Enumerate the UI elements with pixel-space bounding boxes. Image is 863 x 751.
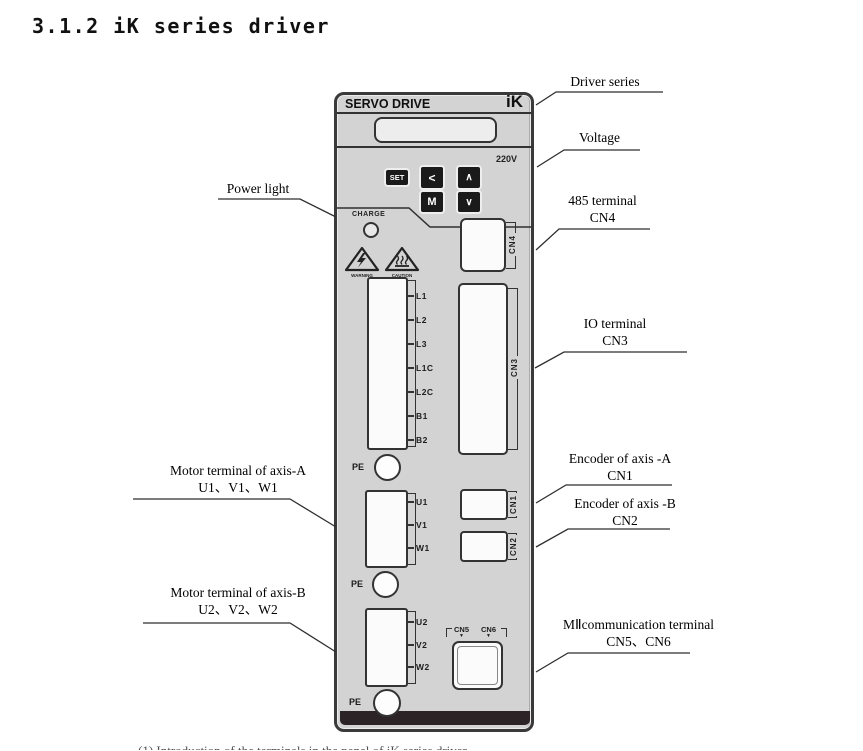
left-arrow-button: < [421, 167, 443, 188]
power-terminal-bracket [408, 280, 416, 447]
pin-label-v1: V1 [416, 520, 427, 530]
pin-tick [407, 644, 414, 646]
cn3-connector [458, 283, 508, 455]
pe-ground-screw [373, 689, 401, 717]
callout-text: Encoder of axis -A [540, 450, 700, 467]
pin-label-l3: L3 [416, 339, 427, 349]
pin-tick [407, 415, 414, 417]
caution-hot-surface-icon: CAUTION [383, 245, 421, 279]
callout-text: CN5、CN6 [536, 633, 741, 650]
header-divider [337, 112, 532, 114]
cn5-arrow-icon: ▼ [459, 633, 464, 639]
cn6-corner [501, 628, 507, 637]
display-divider [337, 146, 532, 148]
motor-a-bracket [408, 493, 416, 565]
pin-label-l2: L2 [416, 315, 427, 325]
set-button: SET [386, 170, 408, 185]
callout-power-light: Power light [208, 180, 308, 197]
pin-tick [407, 295, 414, 297]
pin-tick [407, 501, 414, 503]
charge-led [363, 222, 379, 238]
callout-encoder-a: Encoder of axis -A CN1 [540, 450, 700, 484]
cn2-label: CN2 [509, 535, 518, 558]
pin-label-u2: U2 [416, 617, 428, 627]
cn2-connector [460, 531, 508, 562]
callout-485-terminal: 485 terminal CN4 [540, 192, 665, 226]
callout-voltage: Voltage [552, 129, 647, 146]
mode-button: M [421, 192, 443, 212]
callout-text: U2、V2、W2 [138, 601, 338, 618]
cn5-cn6-connector [452, 641, 503, 690]
cn6-arrow-icon: ▼ [486, 633, 491, 639]
callout-text: Voltage [552, 129, 647, 146]
pin-label-l2c: L2C [416, 387, 434, 397]
callout-text: CN4 [540, 209, 665, 226]
footer-text: (1) Introduction of the terminals in the… [138, 744, 758, 750]
pin-label-v2: V2 [416, 640, 427, 650]
callout-text: Motor terminal of axis-A [138, 462, 338, 479]
warning-triangle-icon: WARNING [343, 245, 381, 279]
pin-label-l1c: L1C [416, 363, 434, 373]
cn1-connector [460, 489, 508, 520]
voltage-rating: 220V [496, 154, 517, 164]
cn4-label: CN4 [508, 233, 517, 256]
pe-label: PE [351, 579, 363, 589]
cn5-cn6-inner [457, 646, 498, 685]
callout-text: Motor terminal of axis-B [138, 584, 338, 601]
pe-ground-screw [374, 454, 401, 481]
panel-bottom-bar [340, 711, 530, 725]
pin-label-b1: B1 [416, 411, 428, 421]
pin-label-w1: W1 [416, 543, 430, 553]
pin-tick [407, 439, 414, 441]
cn4-connector [460, 218, 506, 272]
clipped-footer-text: (1) Introduction of the terminals in the… [138, 744, 758, 750]
callout-mii-terminal: MⅡcommunication terminal CN5、CN6 [536, 616, 741, 650]
callout-text: IO terminal [550, 315, 680, 332]
pin-tick [407, 621, 414, 623]
pin-tick [407, 524, 414, 526]
pin-tick [407, 547, 414, 549]
callout-io-terminal: IO terminal CN3 [550, 315, 680, 349]
cn1-label: CN1 [509, 493, 518, 516]
callout-text: Power light [208, 180, 308, 197]
pin-tick [407, 391, 414, 393]
callout-text: CN1 [540, 467, 700, 484]
callout-driver-series: Driver series [540, 73, 670, 90]
motor-b-terminal-block [365, 608, 408, 687]
pin-tick [407, 666, 414, 668]
pin-label-u1: U1 [416, 497, 428, 507]
pin-label-w2: W2 [416, 662, 430, 672]
pin-label-l1: L1 [416, 291, 427, 301]
pin-tick [407, 367, 414, 369]
callout-text: 485 terminal [540, 192, 665, 209]
callout-text: Encoder of axis -B [545, 495, 705, 512]
cn5-corner [446, 628, 452, 637]
cn3-label: CN3 [510, 356, 519, 379]
ik-logo: iK [506, 92, 523, 112]
up-arrow-button: ∧ [458, 167, 480, 188]
pe-ground-screw [372, 571, 399, 598]
callout-text: CN3 [550, 332, 680, 349]
motor-a-terminal-block [365, 490, 408, 568]
callout-text: MⅡcommunication terminal [536, 616, 741, 633]
callout-text: U1、V1、W1 [138, 479, 338, 496]
callout-encoder-b: Encoder of axis -B CN2 [545, 495, 705, 529]
manual-page: 3.1.2 iK series driver SERVO DRIVE iK 22… [0, 0, 863, 751]
pe-label: PE [352, 462, 364, 472]
pin-tick [407, 343, 414, 345]
callout-text: CN2 [545, 512, 705, 529]
display-window [374, 117, 497, 143]
power-terminal-block [367, 277, 408, 450]
down-arrow-button: ∨ [458, 192, 480, 212]
callout-motor-a: Motor terminal of axis-A U1、V1、W1 [138, 462, 338, 496]
pe-label: PE [349, 697, 361, 707]
brand-label: SERVO DRIVE [345, 97, 430, 111]
charge-label: CHARGE [352, 211, 385, 218]
pin-tick [407, 319, 414, 321]
callout-text: Driver series [540, 73, 670, 90]
pin-label-b2: B2 [416, 435, 428, 445]
callout-motor-b: Motor terminal of axis-B U2、V2、W2 [138, 584, 338, 618]
